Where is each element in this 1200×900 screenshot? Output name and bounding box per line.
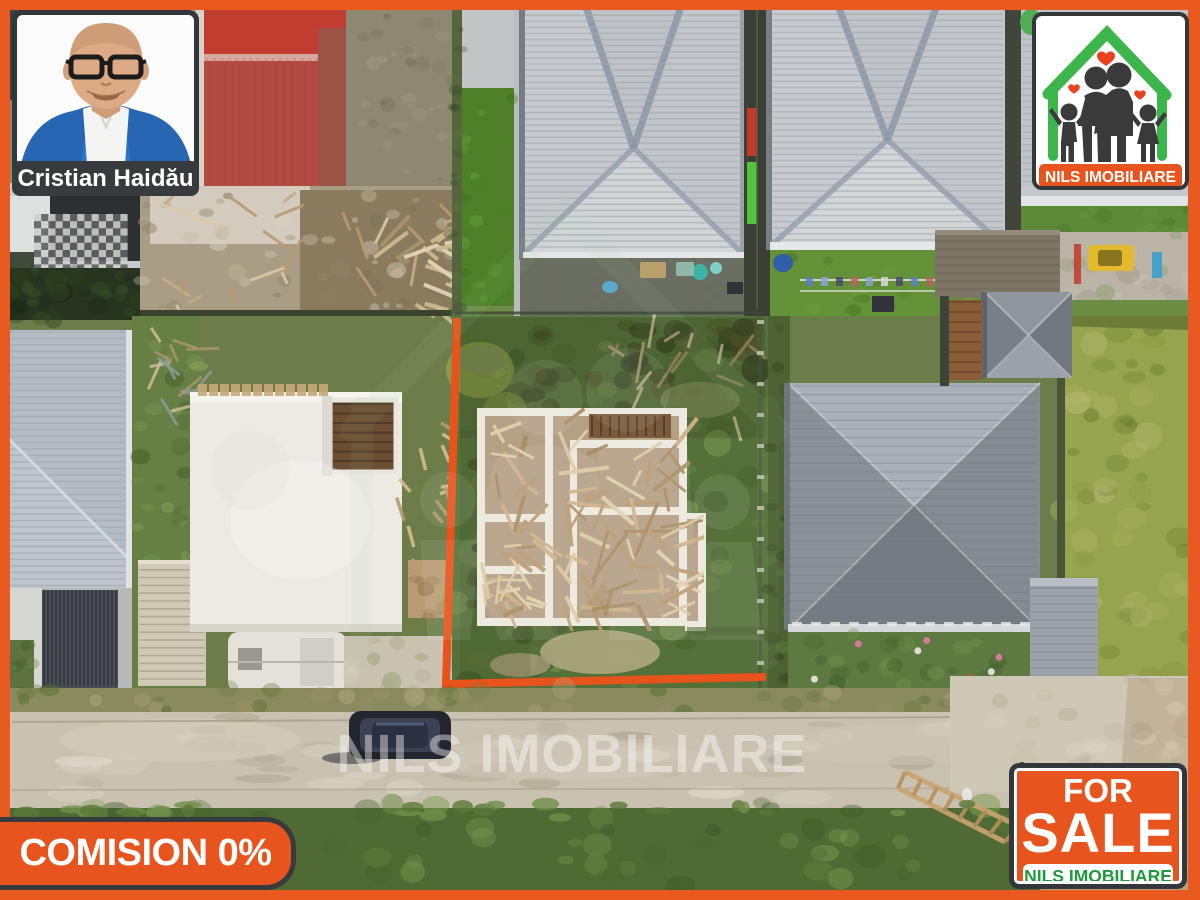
svg-text:NILS IMOBILIARE: NILS IMOBILIARE [337,724,808,784]
svg-text:NILS IMOBILIARE: NILS IMOBILIARE [1045,169,1176,186]
